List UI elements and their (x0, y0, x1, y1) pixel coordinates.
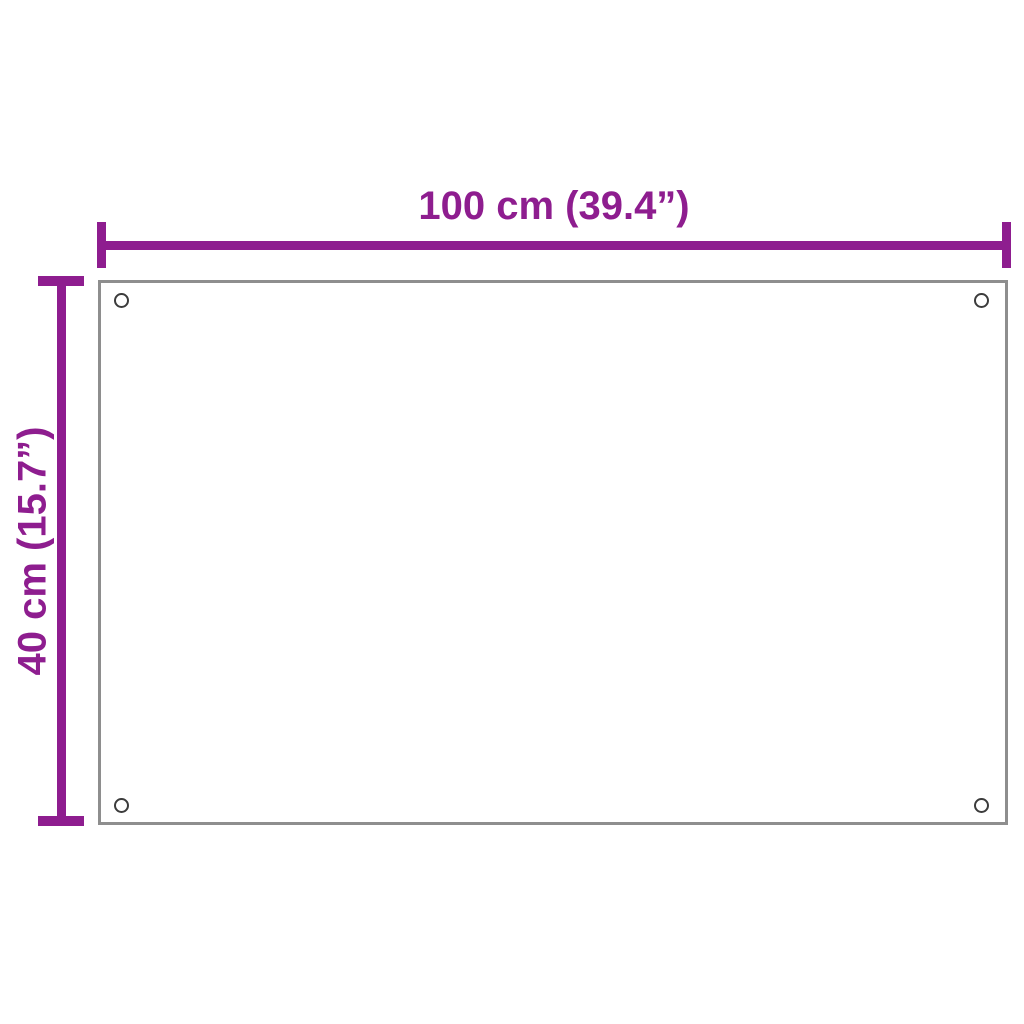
height-dimension (38, 276, 84, 826)
height-dimension-line (57, 276, 66, 826)
width-dimension (97, 222, 1011, 268)
mounting-hole-bottom-right (974, 798, 989, 813)
mounting-hole-top-left (114, 293, 129, 308)
mounting-hole-top-right (974, 293, 989, 308)
product-panel (98, 280, 1008, 825)
width-dimension-endcap-right (1002, 222, 1011, 268)
dimension-diagram: 100 cm (39.4”) 40 cm (15.7”) (0, 0, 1024, 1024)
height-dimension-endcap-bottom (38, 816, 84, 826)
mounting-hole-bottom-left (114, 798, 129, 813)
width-dimension-line (97, 241, 1011, 250)
